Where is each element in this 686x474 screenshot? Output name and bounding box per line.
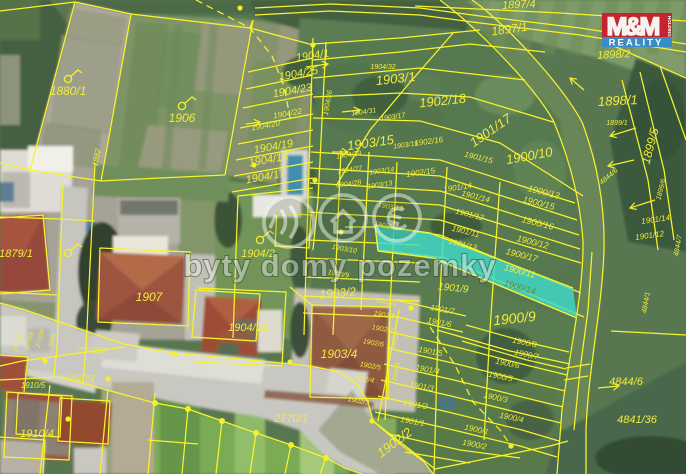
svg-text:REALITY: REALITY [609,38,664,49]
svg-text:1904/12: 1904/12 [228,322,268,334]
svg-text:2770/1: 2770/1 [273,413,308,425]
svg-text:HOLDING: HOLDING [667,16,672,37]
svg-text:1899/1: 1899/1 [606,120,628,127]
svg-text:byty domy pozemky: byty domy pozemky [183,248,496,283]
svg-text:4844/6: 4844/6 [609,376,644,388]
svg-text:1904/32: 1904/32 [370,64,395,71]
svg-text:1903/4: 1903/4 [321,347,358,361]
svg-text:4841/36: 4841/36 [617,414,658,426]
svg-text:1906: 1906 [169,111,196,125]
svg-text:1910/5: 1910/5 [21,381,46,390]
svg-text:1910/4: 1910/4 [20,428,54,440]
svg-text:1879/1: 1879/1 [0,248,33,260]
svg-text:1880/1: 1880/1 [50,84,87,98]
svg-text:1898/1: 1898/1 [598,92,638,109]
svg-text:2770/10: 2770/10 [76,346,106,355]
svg-text:1910/3: 1910/3 [67,373,95,383]
svg-text:1897/4: 1897/4 [502,0,536,12]
svg-text:1907: 1907 [136,290,164,304]
svg-text:1898/2: 1898/2 [597,48,631,62]
